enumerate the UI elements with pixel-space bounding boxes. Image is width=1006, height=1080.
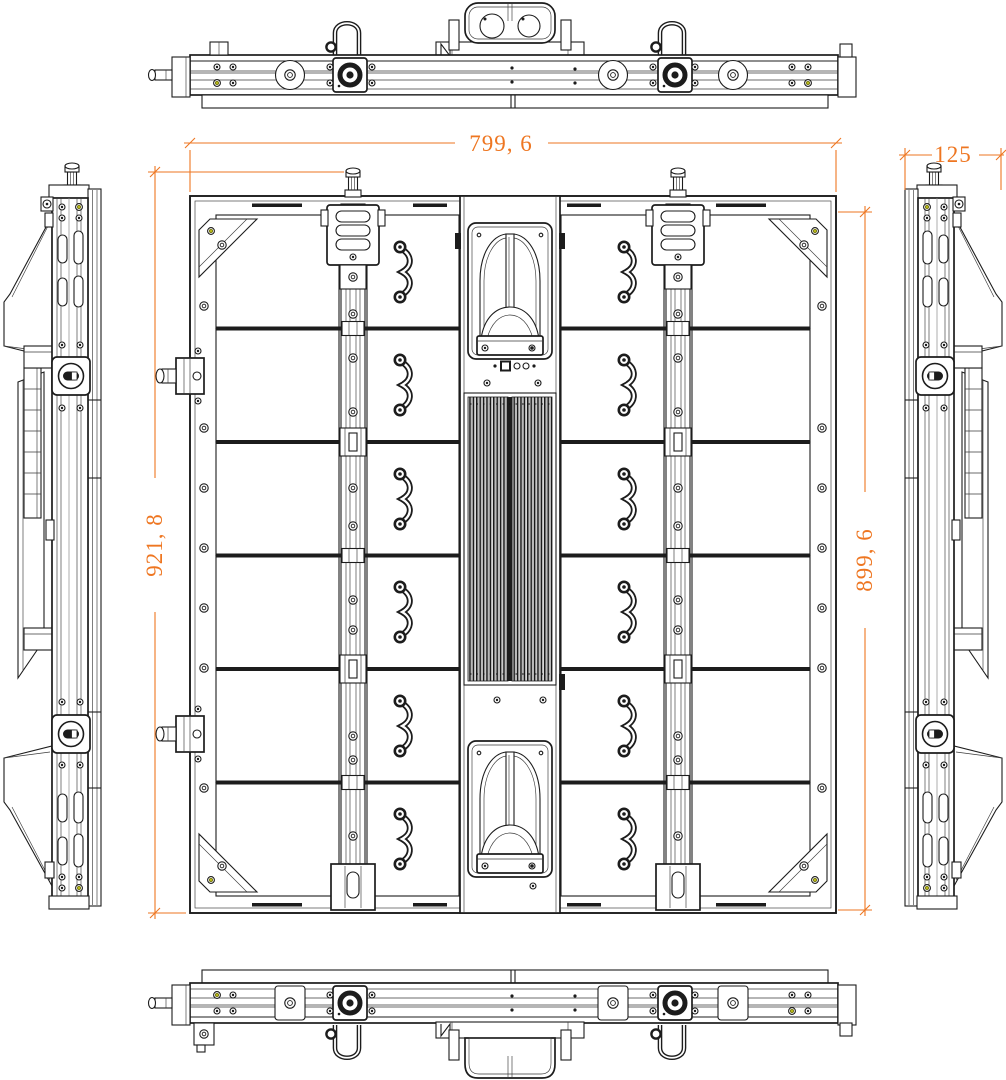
center-column bbox=[455, 196, 565, 913]
roller-disc-icon bbox=[599, 61, 628, 90]
screw-icon bbox=[214, 1008, 220, 1014]
ground-screw-icon bbox=[214, 80, 221, 87]
cad-drawing-canvas: 799, 6 921, 8 899, 6 125 bbox=[0, 0, 1006, 1080]
screw-icon bbox=[230, 64, 236, 70]
screw-icon bbox=[200, 664, 208, 672]
screw-icon bbox=[530, 883, 536, 889]
screw-icon bbox=[327, 64, 333, 70]
screw-icon bbox=[692, 992, 698, 998]
lock-knob-icon bbox=[658, 986, 692, 1020]
screw-icon bbox=[692, 80, 698, 86]
screw-icon bbox=[327, 80, 333, 86]
screw-icon bbox=[494, 697, 500, 703]
screw-icon bbox=[805, 64, 811, 70]
screw-icon bbox=[369, 1008, 375, 1014]
screw-icon bbox=[818, 664, 826, 672]
ground-screw-icon bbox=[214, 992, 221, 999]
screw-icon bbox=[535, 380, 541, 386]
screw-icon bbox=[818, 784, 826, 792]
screw-icon bbox=[327, 1008, 333, 1014]
screw-icon bbox=[818, 544, 826, 552]
screw-icon bbox=[369, 64, 375, 70]
screw-icon bbox=[230, 1008, 236, 1014]
screw-icon bbox=[200, 424, 208, 432]
screw-icon bbox=[214, 64, 220, 70]
screw-icon bbox=[818, 302, 826, 310]
screw-icon bbox=[818, 424, 826, 432]
screw-icon bbox=[818, 484, 826, 492]
screw-icon bbox=[230, 80, 236, 86]
screw-icon bbox=[327, 992, 333, 998]
mount-plate-icon bbox=[718, 986, 748, 1020]
power-box-top bbox=[465, 3, 555, 43]
screw-icon bbox=[692, 64, 698, 70]
screw-icon bbox=[650, 1008, 656, 1014]
screw-icon bbox=[484, 380, 490, 386]
screw-icon bbox=[200, 544, 208, 552]
mount-plate-icon bbox=[275, 986, 305, 1020]
lock-knob-icon bbox=[658, 58, 692, 92]
heatsink bbox=[464, 393, 556, 685]
screw-icon bbox=[818, 604, 826, 612]
handle-recess bbox=[468, 223, 552, 359]
screw-icon bbox=[650, 80, 656, 86]
ground-screw-icon bbox=[789, 1008, 796, 1015]
screw-icon bbox=[540, 697, 546, 703]
screw-icon bbox=[692, 1008, 698, 1014]
screw-icon bbox=[369, 80, 375, 86]
screw-icon bbox=[369, 992, 375, 998]
screw-icon bbox=[650, 64, 656, 70]
screw-icon bbox=[805, 1008, 811, 1014]
screw-icon bbox=[789, 992, 795, 998]
screw-icon bbox=[200, 484, 208, 492]
screw-icon bbox=[200, 784, 208, 792]
roller-disc-icon bbox=[276, 61, 305, 90]
screw-icon bbox=[230, 992, 236, 998]
dimension-depth-label: 125 bbox=[934, 142, 972, 167]
dimension-height-left-label: 921, 8 bbox=[142, 513, 167, 577]
lock-knob-icon bbox=[333, 58, 367, 92]
lock-knob-icon bbox=[333, 986, 367, 1020]
mount-plate-icon bbox=[598, 986, 628, 1020]
power-box-bottom bbox=[465, 1038, 555, 1078]
screw-icon bbox=[650, 992, 656, 998]
screw-icon bbox=[200, 302, 208, 310]
dimension-height-right-label: 899, 6 bbox=[852, 528, 877, 592]
screw-icon bbox=[805, 992, 811, 998]
dimension-width-label: 799, 6 bbox=[469, 131, 533, 156]
screw-icon bbox=[200, 1030, 208, 1038]
screw-icon bbox=[789, 64, 795, 70]
handle-recess bbox=[468, 741, 552, 877]
roller-disc-icon bbox=[719, 61, 748, 90]
indicator-icon bbox=[501, 362, 510, 371]
screw-icon bbox=[789, 80, 795, 86]
screw-icon bbox=[200, 604, 208, 612]
ground-screw-icon bbox=[805, 80, 812, 87]
